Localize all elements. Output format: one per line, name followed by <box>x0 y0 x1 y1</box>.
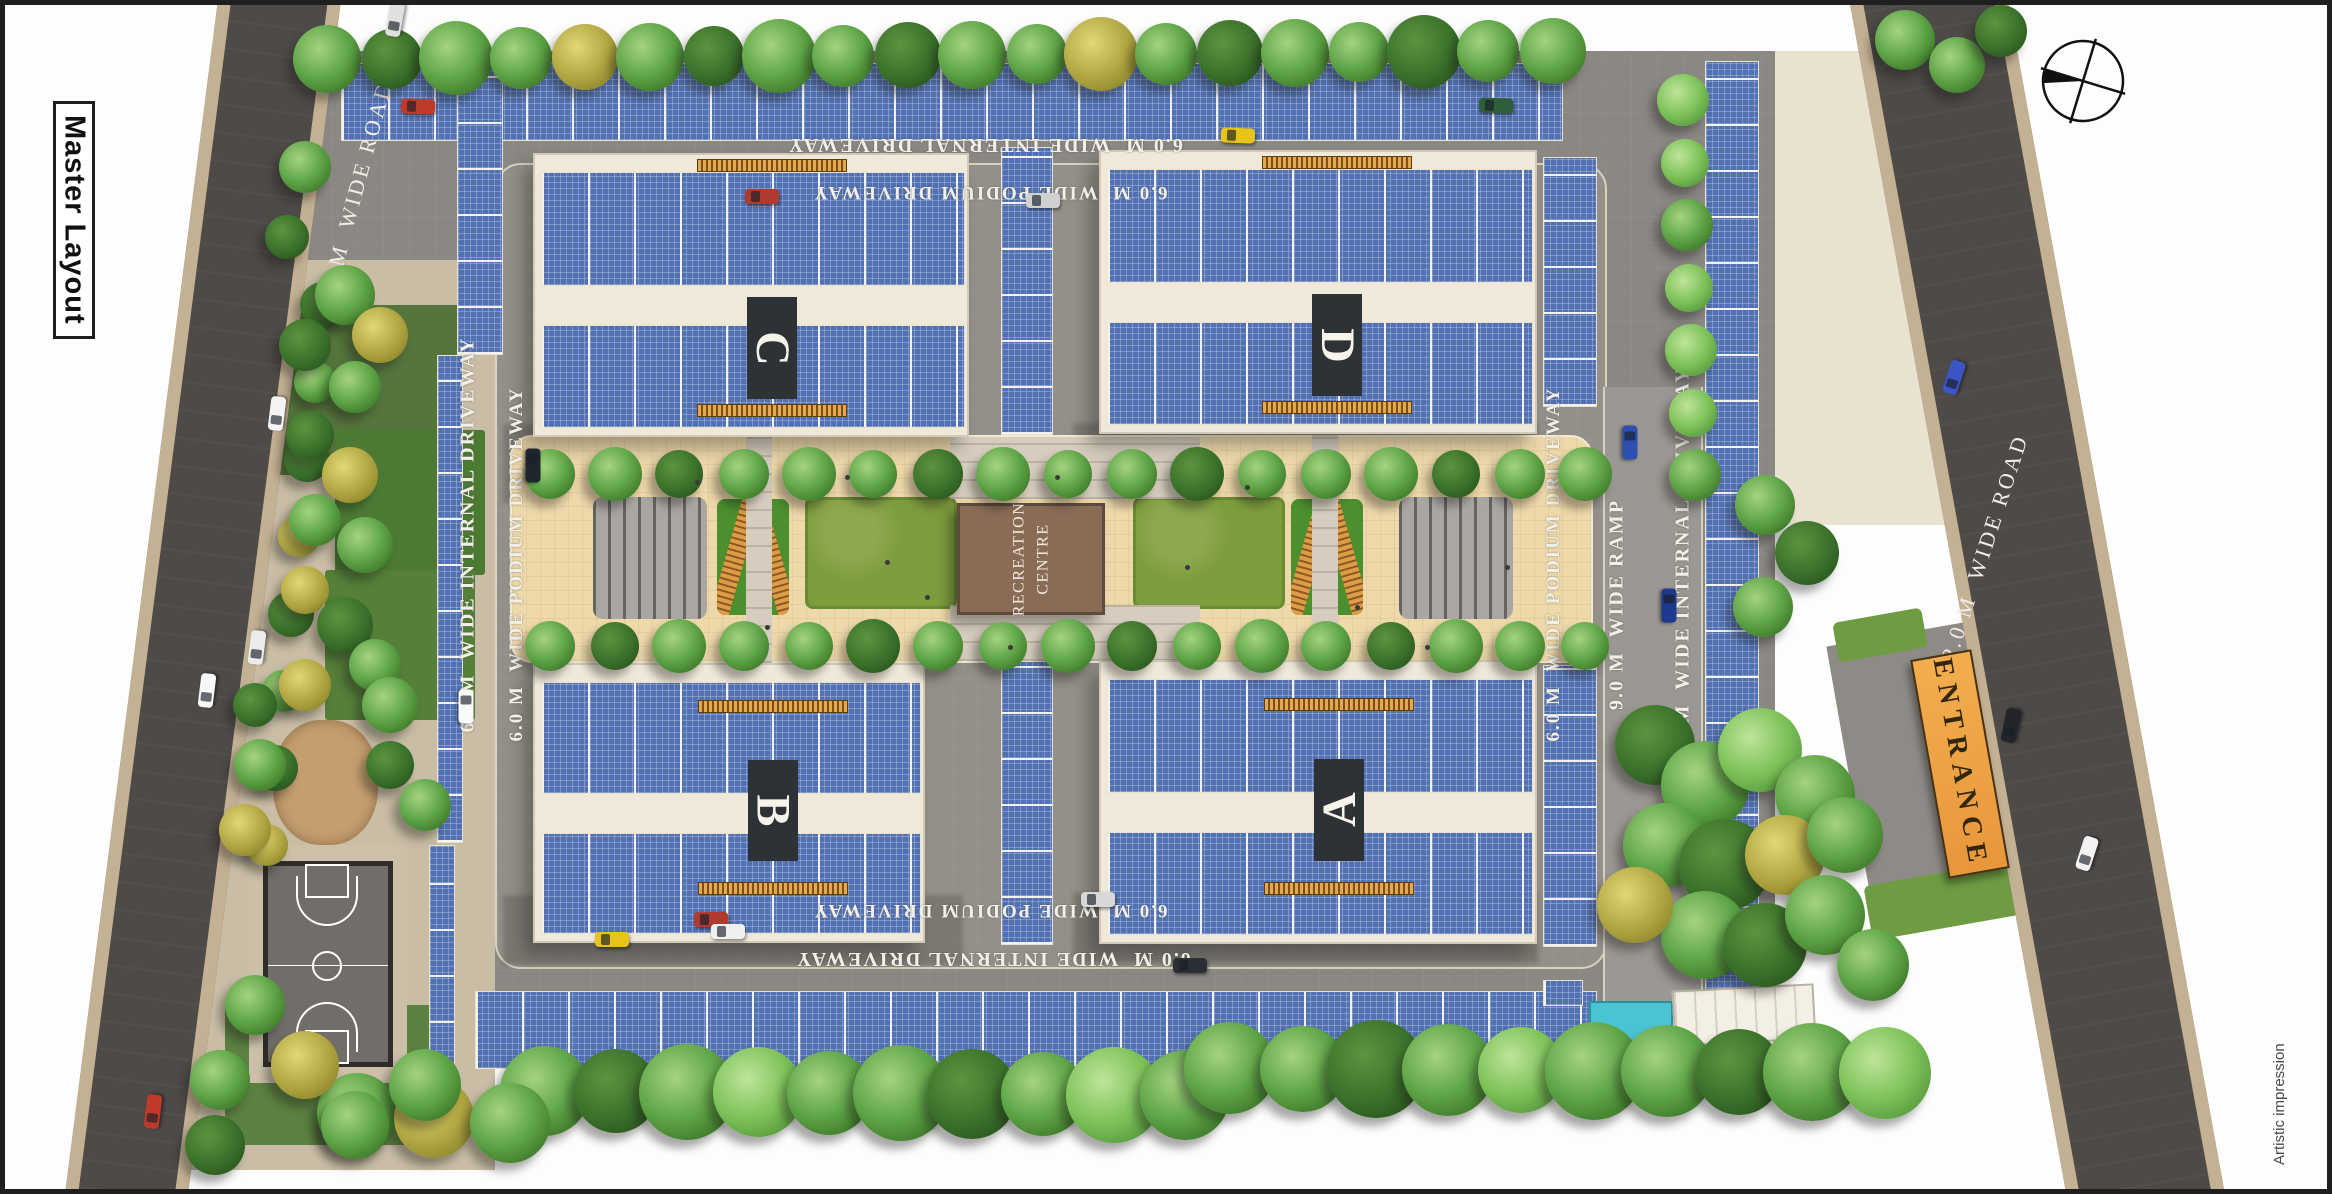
tree <box>329 361 381 413</box>
person-dot <box>885 560 890 565</box>
tree <box>1261 19 1329 87</box>
tree <box>322 447 378 503</box>
artistic-impression-note: Artistic impression <box>2271 965 2288 1165</box>
person-dot <box>695 480 700 485</box>
tree <box>1364 447 1418 501</box>
car-windshield <box>1664 595 1675 604</box>
person-dot <box>845 475 850 480</box>
tree <box>525 621 575 671</box>
tree <box>1238 450 1286 498</box>
tree <box>1669 389 1717 437</box>
tree <box>279 319 331 371</box>
tree <box>219 804 271 856</box>
tree <box>352 307 408 363</box>
person-dot <box>925 595 930 600</box>
tree <box>719 621 769 671</box>
tree <box>552 24 618 90</box>
tree <box>321 1091 389 1159</box>
right-podium-driveway-label: 6.0 M WIDE PODIUM DRIVEWAY <box>1543 364 1565 764</box>
tree <box>1235 619 1289 673</box>
pergola-bridge <box>697 404 847 417</box>
person-dot <box>1355 605 1360 610</box>
tower-core: D <box>1312 294 1362 396</box>
car-windshield <box>388 21 400 32</box>
car <box>1221 127 1256 143</box>
plan-title: Master Layout <box>58 115 91 325</box>
top-podium-driveway-label: 6.0 M WIDE PODIUM DRIVEWAY <box>790 181 1190 203</box>
court-arc-top <box>296 876 358 926</box>
court-center-circle <box>312 951 342 981</box>
tree <box>1107 621 1157 671</box>
tree <box>719 449 769 499</box>
tree <box>1875 10 1935 70</box>
pergola-bridge <box>1262 401 1412 414</box>
car-windshield <box>1945 378 1958 390</box>
tree <box>652 619 706 673</box>
tree <box>1173 622 1221 670</box>
tree <box>1197 20 1263 86</box>
tree <box>875 22 941 88</box>
car-windshield <box>1227 130 1236 141</box>
tower-letter: C <box>744 331 799 366</box>
car-windshield <box>528 455 539 464</box>
left-internal-driveway-label: 6.0 M WIDE INTERNAL DRIVEWAY <box>457 335 480 735</box>
tower-letter: D <box>1309 328 1364 363</box>
tree <box>1520 18 1586 84</box>
tree <box>362 29 422 89</box>
car <box>401 98 436 114</box>
tree <box>1007 24 1067 84</box>
person-dot <box>1245 485 1250 490</box>
car-windshield <box>717 926 726 937</box>
tree <box>913 621 963 671</box>
basketball-court <box>263 861 393 1067</box>
tree <box>362 677 418 733</box>
tree <box>1661 139 1709 187</box>
tree <box>286 411 334 459</box>
tree <box>1387 15 1461 89</box>
tree <box>976 447 1030 501</box>
tree <box>490 27 552 89</box>
car-windshield <box>146 1113 158 1123</box>
tree <box>279 659 331 711</box>
car-windshield <box>461 696 472 705</box>
car-windshield <box>250 649 262 659</box>
car <box>459 690 474 724</box>
car <box>1623 426 1638 460</box>
tree <box>233 683 277 727</box>
tree <box>979 622 1027 670</box>
solar-array <box>1543 980 1583 1006</box>
tree <box>1837 929 1909 1001</box>
master-layout-plan: RECREATION CENTRE CDBA 12.0 M WIDE ROAD … <box>0 0 2332 1194</box>
car <box>1081 892 1115 907</box>
tree <box>1170 447 1224 501</box>
pergola-bridge <box>1264 882 1414 895</box>
tree <box>1929 37 1985 93</box>
roof-solar-band <box>541 682 921 794</box>
recreation-centre-label: RECREATION CENTRE <box>1007 502 1055 617</box>
tree <box>1839 1027 1931 1119</box>
solar-array <box>457 65 503 355</box>
car <box>1662 589 1677 623</box>
person-dot <box>1425 645 1430 650</box>
tree <box>399 779 451 831</box>
car-windshield <box>270 415 282 425</box>
tree <box>293 25 361 93</box>
tree <box>1561 622 1609 670</box>
car-windshield <box>1032 195 1041 206</box>
tree <box>1107 449 1157 499</box>
tree <box>785 622 833 670</box>
car <box>526 449 541 483</box>
tree <box>1775 521 1839 585</box>
ramp-label: 9.0 M WIDE RAMP <box>1606 455 1629 755</box>
car <box>1173 958 1207 973</box>
tree <box>1044 450 1092 498</box>
car-windshield <box>751 191 760 202</box>
car <box>711 924 745 939</box>
car-windshield <box>1625 432 1636 441</box>
pergola-bridge <box>698 700 848 713</box>
tree <box>1041 619 1095 673</box>
lawn-left <box>805 497 957 609</box>
tree <box>588 447 642 501</box>
tree <box>616 23 684 91</box>
tree <box>1733 577 1793 637</box>
tower-core: C <box>747 297 797 399</box>
right-road <box>1845 0 2231 1194</box>
plan-title-box: Master Layout <box>53 101 95 339</box>
left-podium-driveway-label: 6.0 M WIDE PODIUM DRIVEWAY <box>506 364 528 764</box>
tower-letter: A <box>1311 792 1366 827</box>
pergola-bridge <box>697 159 847 172</box>
tree <box>1135 23 1197 85</box>
tree <box>782 447 836 501</box>
solar-array <box>429 845 455 1070</box>
tree <box>1665 264 1713 312</box>
recreation-centre: RECREATION CENTRE <box>957 503 1105 615</box>
tree <box>1665 324 1717 376</box>
car-windshield <box>2078 854 2091 866</box>
tree <box>271 1031 339 1099</box>
tree <box>1597 867 1673 943</box>
car <box>595 932 629 947</box>
tree <box>1735 475 1795 535</box>
tree <box>366 741 414 789</box>
bottom-podium-driveway-label: 6.0 M WIDE PODIUM DRIVEWAY <box>790 899 1190 921</box>
tree <box>234 739 286 791</box>
person-dot <box>1055 475 1060 480</box>
tree <box>1495 449 1545 499</box>
pergola-bridge <box>1264 698 1414 711</box>
tree <box>225 975 285 1035</box>
tree <box>1669 449 1721 501</box>
tree <box>938 21 1006 89</box>
tree <box>812 25 874 87</box>
pergola-bridge <box>1262 156 1412 169</box>
tree <box>279 141 331 193</box>
tower-core: A <box>1314 759 1364 861</box>
tree <box>265 215 309 259</box>
tree <box>1558 447 1612 501</box>
tree <box>281 566 329 614</box>
tree <box>742 19 816 93</box>
bottom-internal-driveway-label: 6.0 M WIDE INTERNAL DRIVEWAY <box>793 947 1193 970</box>
person-dot <box>1008 645 1013 650</box>
tower-letter: B <box>745 795 800 827</box>
tree <box>1432 450 1480 498</box>
north-compass-icon <box>2033 33 2133 133</box>
car-windshield <box>1179 960 1188 971</box>
car-windshield <box>1485 100 1494 111</box>
tree <box>190 1050 250 1110</box>
tree <box>1301 621 1351 671</box>
tree <box>185 1115 245 1175</box>
tree <box>289 494 341 546</box>
top-internal-driveway-label: 6.0 M WIDE INTERNAL DRIVEWAY <box>785 133 1185 156</box>
tree <box>591 622 639 670</box>
lawn-right <box>1133 497 1285 609</box>
tree <box>1807 797 1883 873</box>
tree <box>337 517 393 573</box>
tower-core: B <box>748 760 798 861</box>
tree <box>1367 622 1415 670</box>
car <box>1479 97 1514 113</box>
car-windshield <box>601 934 610 945</box>
tree <box>1301 449 1351 499</box>
tree <box>1661 199 1713 251</box>
play-courts-right <box>1399 497 1513 619</box>
tree <box>419 21 493 95</box>
car-windshield <box>200 692 212 702</box>
tree <box>1429 619 1483 673</box>
tree <box>1657 74 1709 126</box>
car <box>1026 193 1060 208</box>
person-dot <box>765 625 770 630</box>
car-windshield <box>2003 726 2016 737</box>
person-dot <box>1505 565 1510 570</box>
person-dot <box>1185 565 1190 570</box>
play-courts-left <box>593 497 707 619</box>
car-windshield <box>407 101 416 112</box>
tree <box>389 1049 461 1121</box>
tree <box>470 1083 550 1163</box>
tree <box>1975 5 2027 57</box>
car <box>745 189 779 204</box>
car-windshield <box>700 914 709 925</box>
tree <box>913 449 963 499</box>
pergola-bridge <box>698 882 848 895</box>
tree <box>1495 621 1545 671</box>
car-windshield <box>1087 894 1096 905</box>
tree <box>1064 17 1138 91</box>
